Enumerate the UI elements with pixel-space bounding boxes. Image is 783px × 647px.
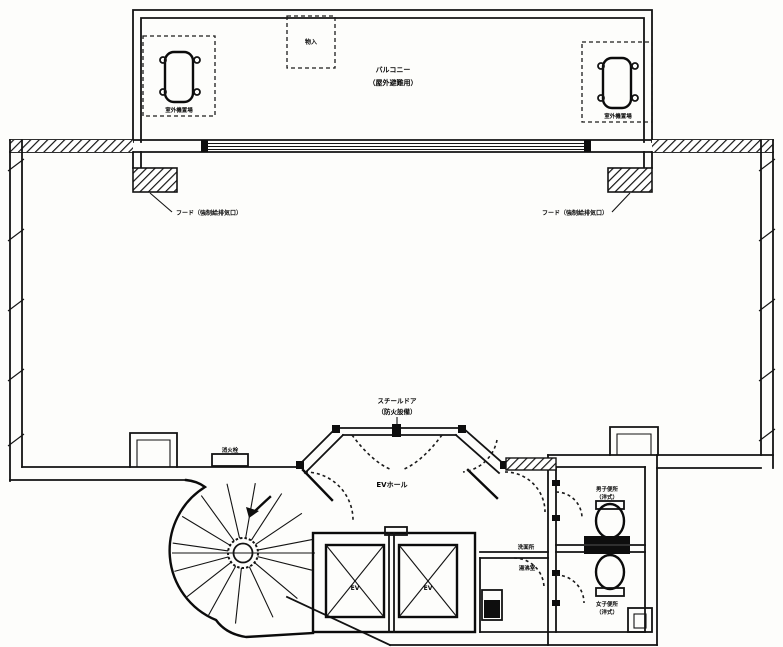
steel-door-label-line2: （防火設備） [378,407,417,416]
wc-lower-label-line2: （洋式） [596,608,618,616]
wc-upper-door-swing [556,492,582,518]
door-swing-corridor [505,472,545,512]
outdoor-unit-symbol [603,58,631,108]
wall-fixture: 消火栓 [212,446,248,466]
balcony-label-line1: バルコニー [376,66,411,74]
outdoor-unit-symbol [165,52,193,102]
wc-upper-label-line1: 男子便所 [596,485,619,493]
wc-lower-label-line1: 女子便所 [596,600,619,608]
balcony-section: 室外機置場 物入 バルコニー （屋外避難用） 室外機置場 [133,10,652,142]
ev-hall-label: EVホール [376,481,407,489]
outdoor-unit-left: 室外機置場 [143,36,215,116]
outdoor-unit-left-label: 室外機置場 [165,106,193,114]
wc-upper-label-line2: （洋式） [596,493,618,501]
wc-upper: 男子便所 （洋式） [556,485,630,544]
window-band [201,140,591,152]
counter-sink [584,546,630,554]
kitchenette: 湯沸室 [482,558,544,620]
hatched-wall-segment [506,458,556,470]
vent-piers: フード（強制給排気口） フード（強制給排気口） [133,152,652,217]
elevator-shaft-right: EV [399,545,457,617]
outdoor-unit-right: 室外機置場 [582,42,652,122]
door-swing-left-leaf [352,435,392,470]
wc-lower: 女子便所 （洋式） [556,546,652,632]
elevator-shaft-left: EV [326,545,384,617]
top-wall-hatch-right [652,140,773,152]
ev-right-label: EV [424,585,433,592]
outdoor-unit-right-label: 室外機置場 [604,112,632,120]
fixture-label: 消火栓 [222,446,239,454]
main-room: フード（強制給排気口） フード（強制給排気口） 消火栓 [8,140,775,481]
ev-left-label: EV [351,585,360,592]
kitchenette-door-swing [514,558,544,588]
elevator-block: EV EV [313,527,475,632]
hood-left-label: フード（強制給排気口） [176,209,242,217]
stair-treads [172,483,315,623]
counter-sink [584,536,630,544]
door-leaf-left [303,470,332,500]
floor-plan-drawing: 室外機置場 物入 バルコニー （屋外避難用） 室外機置場 [0,0,783,647]
top-wall-hatch-left [10,140,133,152]
balcony-label-line2: （屋外避難用） [369,78,418,87]
washroom-label: 洗面所 [518,543,535,551]
hood-right-label: フード（強制給排気口） [542,209,608,217]
stair-leader-line [287,597,390,645]
scanned-floor-plan-page: 室外機置場 物入 バルコニー （屋外避難用） 室外機置場 [0,0,783,647]
storage-label: 物入 [305,38,317,46]
door-swing-right-leaf [402,435,442,470]
door-leaf-right [468,470,497,498]
toilet-bowl [596,555,624,589]
wc-lower-door-swing [556,575,584,603]
spiral-staircase [170,480,390,645]
storage-box: 物入 [287,16,335,68]
steel-door-label-line1: スチールドア [378,397,418,405]
